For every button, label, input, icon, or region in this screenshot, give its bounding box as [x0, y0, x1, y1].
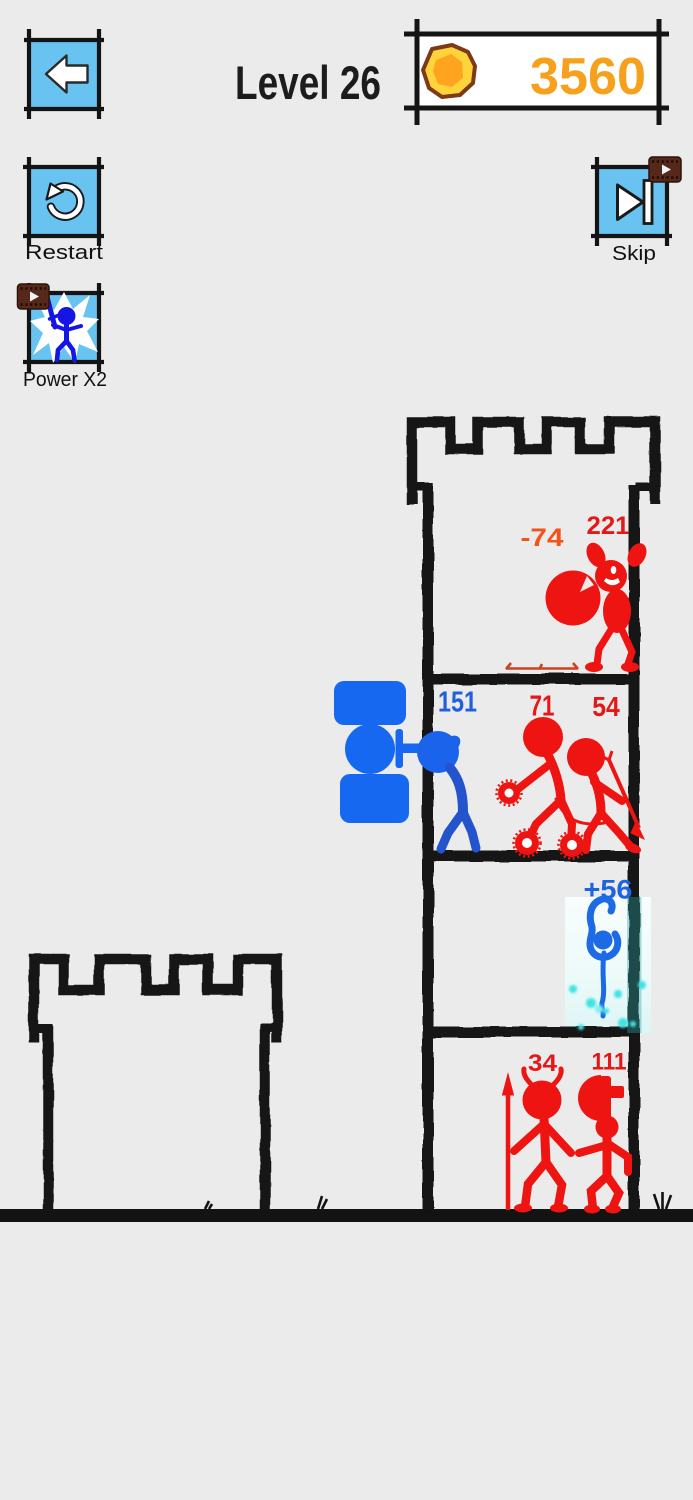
svg-text:Power X2: Power X2 [23, 369, 107, 391]
svg-text:54: 54 [592, 691, 620, 722]
svg-text:Skip: Skip [612, 243, 656, 265]
svg-text:111: 111 [592, 1049, 627, 1076]
svg-text:-74: -74 [521, 524, 564, 552]
svg-text:221: 221 [587, 512, 630, 540]
svg-text:34: 34 [528, 1050, 558, 1077]
svg-text:Restart: Restart [25, 242, 104, 264]
svg-text:3560: 3560 [530, 48, 646, 106]
svg-text:151: 151 [438, 687, 477, 719]
svg-text:Level 26: Level 26 [235, 56, 381, 109]
